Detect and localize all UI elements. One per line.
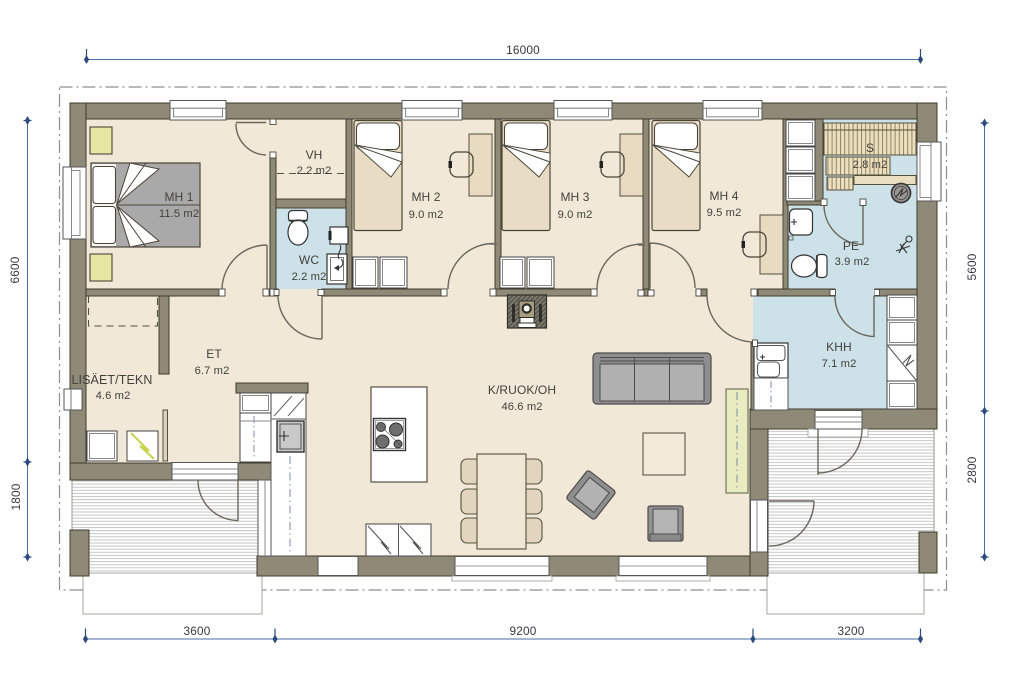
svg-text:VH: VH xyxy=(306,148,323,162)
svg-text:LISÄET/TEKN: LISÄET/TEKN xyxy=(72,373,153,387)
svg-text:WC: WC xyxy=(299,253,319,267)
svg-text:6600: 6600 xyxy=(8,256,22,283)
svg-text:1800: 1800 xyxy=(9,483,23,510)
svg-text:2800: 2800 xyxy=(965,456,979,483)
svg-text:3.9 m2: 3.9 m2 xyxy=(835,256,870,268)
svg-text:9.0 m2: 9.0 m2 xyxy=(558,209,593,221)
svg-text:3200: 3200 xyxy=(837,624,864,638)
svg-text:11.5 m2: 11.5 m2 xyxy=(159,208,199,220)
svg-text:MH 2: MH 2 xyxy=(411,190,440,204)
svg-text:6.7 m2: 6.7 m2 xyxy=(195,365,230,377)
svg-text:KHH: KHH xyxy=(826,340,852,354)
svg-text:MH 3: MH 3 xyxy=(560,190,589,204)
svg-text:9.5 m2: 9.5 m2 xyxy=(707,207,742,219)
svg-text:K/RUOK/OH: K/RUOK/OH xyxy=(488,383,556,397)
svg-text:ET: ET xyxy=(206,347,222,361)
svg-text:9200: 9200 xyxy=(509,624,536,638)
svg-text:2.8 m2: 2.8 m2 xyxy=(853,159,888,171)
svg-text:2.2 m2: 2.2 m2 xyxy=(292,271,327,283)
svg-text:5600: 5600 xyxy=(965,253,979,280)
svg-text:MH 4: MH 4 xyxy=(709,189,738,203)
svg-text:16000: 16000 xyxy=(506,43,540,57)
svg-text:PE: PE xyxy=(843,239,859,253)
svg-text:2.2 m2: 2.2 m2 xyxy=(297,165,332,177)
svg-text:7.1 m2: 7.1 m2 xyxy=(822,358,857,370)
svg-text:46.6 m2: 46.6 m2 xyxy=(501,401,542,413)
svg-text:MH 1: MH 1 xyxy=(164,190,193,204)
svg-text:S: S xyxy=(866,141,874,155)
svg-text:3600: 3600 xyxy=(183,624,210,638)
svg-text:4.6 m2: 4.6 m2 xyxy=(96,390,131,402)
svg-text:9.0 m2: 9.0 m2 xyxy=(409,209,444,221)
